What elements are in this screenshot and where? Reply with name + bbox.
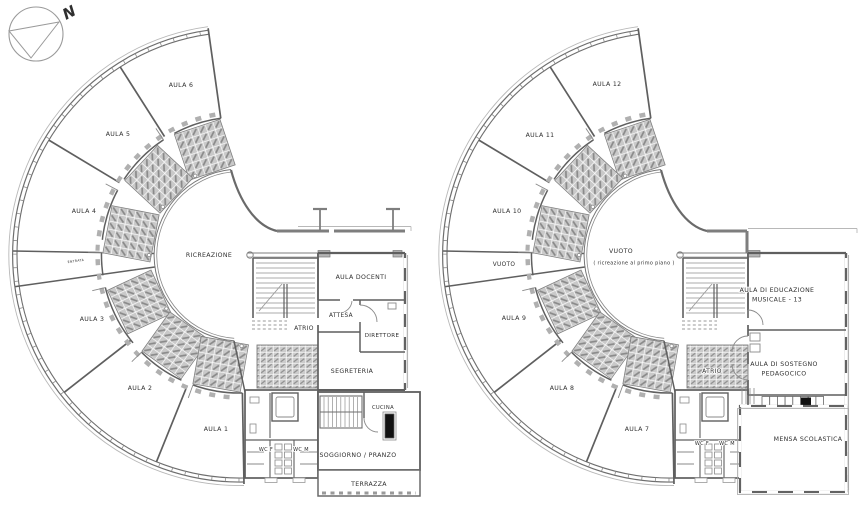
- window-mullion-tick: [148, 48, 150, 52]
- door-swing: [360, 305, 377, 322]
- window-mullion-tick: [134, 452, 136, 456]
- room-label-educazione-musicale: AULA DI EDUCAZIONE: [740, 287, 815, 294]
- room-label-mensa-scolastica: MENSA SCOLASTICA: [774, 436, 843, 443]
- main-staircase: [252, 253, 318, 329]
- window-mullion-tick: [123, 60, 125, 63]
- window-mullion-tick: [457, 333, 461, 334]
- room-label-aula-6: AULA 6: [169, 82, 194, 89]
- column-marker: [595, 307, 598, 310]
- room-label-sostegno-pedagogico: PEDAGOCICO: [762, 371, 807, 378]
- plan-rect: [533, 206, 589, 262]
- window-mullion-tick: [27, 333, 31, 334]
- window-mullion-tick: [590, 42, 591, 46]
- wc-sink: [285, 444, 292, 450]
- counter-cell: [762, 397, 770, 407]
- wc-sink: [715, 452, 722, 458]
- room-label-soggiorno-pranzo: SOGGIORNO / PRANZO: [320, 452, 397, 459]
- window-mullion-tick: [491, 392, 494, 394]
- counter-cell: [777, 397, 785, 407]
- window-mullion-tick: [616, 34, 617, 38]
- window-mullion-tick: [146, 458, 148, 462]
- curved-entry-wall: [661, 170, 707, 231]
- window-mullion-tick: [509, 412, 512, 415]
- fan-end-wall: [672, 393, 674, 484]
- window-mullion-tick: [69, 402, 72, 405]
- classroom-partition-wall: [64, 340, 131, 392]
- window-mullion-tick: [454, 187, 458, 188]
- room-label-segreteria: SEGRETERIA: [331, 368, 374, 375]
- room-label-terrazza: TERRAZZA: [350, 481, 387, 488]
- door-opening: [104, 275, 106, 287]
- floor-plan-left: AULA 6AULA 5AULA 4AULA 3AULA 2AULA 1RICR…: [9, 27, 420, 496]
- atrium-ramp-hatch: [257, 345, 318, 388]
- window-mullion-tick: [110, 438, 112, 441]
- window-mullion-tick: [172, 468, 173, 472]
- wc-fixture: [250, 424, 256, 433]
- room-label-wc-f: WC F: [259, 447, 273, 453]
- furniture: [388, 303, 396, 309]
- window-mullion-tick: [484, 125, 487, 127]
- window-mullion-tick: [603, 38, 604, 42]
- window-mullion-tick: [510, 94, 513, 97]
- window-mullion-tick: [615, 471, 616, 475]
- door-opening: [594, 134, 605, 141]
- radiator: [265, 478, 277, 483]
- window-mullion-tick: [61, 392, 64, 394]
- room-sublabel-vuoto-centro: ( ricreazione al primo piano ): [593, 261, 674, 267]
- column-marker: [240, 344, 243, 347]
- room-label-aula-3: AULA 3: [80, 316, 105, 323]
- radiator: [723, 478, 735, 483]
- classroom-partition-wall: [120, 67, 166, 139]
- window-mullion-tick: [135, 54, 137, 58]
- room-label-vuoto-centro: VUOTO: [609, 248, 633, 255]
- room-label-ricreazione: RICREAZIONE: [186, 252, 232, 259]
- kitchen-appliance: [801, 398, 811, 406]
- wc-block: [675, 390, 748, 483]
- door-opening: [534, 275, 536, 287]
- north-arrow-compass: N: [9, 2, 79, 61]
- window-mullion-tick: [39, 149, 43, 151]
- wc-sink: [275, 460, 282, 466]
- room-label-entrata: ENTRATA: [67, 258, 85, 264]
- room-label-aula-docenti: AULA DOCENTI: [336, 274, 387, 281]
- window-mullion-tick: [28, 174, 32, 175]
- room-label-aula-12: AULA 12: [593, 81, 622, 88]
- window-mullion-tick: [23, 320, 27, 321]
- column-marker: [670, 344, 673, 347]
- window-mullion-tick: [17, 294, 21, 295]
- floor-plan-right: AULA 12AULA 11AULA 10VUOTOAULA 9AULA 8AU…: [439, 27, 857, 495]
- window-mullion-tick: [453, 320, 457, 321]
- window-mullion-tick: [24, 187, 28, 188]
- window-mullion-tick: [186, 34, 187, 38]
- wc-sink: [285, 460, 292, 466]
- column-marker: [577, 253, 580, 256]
- radiator: [293, 478, 305, 483]
- door-opening: [563, 343, 571, 352]
- window-mullion-tick: [565, 54, 567, 58]
- radiator: [695, 478, 707, 483]
- floor-plan-drawing: N AULA 6AULA 5AULA 4AULA 3AULA 2AULA 1RI…: [0, 0, 860, 510]
- door-opening: [164, 134, 175, 141]
- window-mullion-tick: [501, 104, 504, 107]
- window-mullion-tick: [19, 308, 23, 309]
- wc-sink: [715, 468, 722, 474]
- lift-car: [706, 397, 724, 417]
- main-staircase: [682, 253, 748, 329]
- hatched-ramp-patch: [533, 206, 589, 262]
- kitchen-appliance: [385, 414, 394, 438]
- door-swing: [339, 300, 352, 313]
- window-mullion-tick: [90, 85, 93, 88]
- window-mullion-tick: [71, 104, 74, 107]
- north-label: N: [59, 2, 79, 24]
- window-mullion-tick: [492, 114, 495, 116]
- classroom-partition-wall: [156, 383, 188, 462]
- counter-cell: [793, 397, 801, 407]
- wc-fixture: [250, 397, 259, 403]
- wc-sink: [275, 444, 282, 450]
- wc-fixture: [680, 424, 686, 433]
- window-mullion-tick: [483, 381, 486, 383]
- window-mullion-tick: [198, 474, 199, 478]
- window-mullion-tick: [450, 200, 454, 201]
- column-marker: [591, 205, 594, 208]
- window-mullion-tick: [447, 213, 451, 214]
- window-mullion-tick: [469, 358, 473, 360]
- window-mullion-tick: [99, 430, 101, 433]
- classroom-partition-wall: [550, 67, 596, 139]
- window-mullion-tick: [447, 294, 451, 295]
- room-label-wc-m: WC M: [293, 447, 309, 453]
- window-mullion-tick: [160, 42, 161, 46]
- room-label-aula-10: AULA 10: [493, 208, 522, 215]
- window-mullion-tick: [79, 412, 82, 415]
- window-mullion-tick: [475, 370, 478, 372]
- window-mullion-tick: [17, 213, 21, 214]
- window-mullion-tick: [499, 402, 502, 405]
- fan-end-wall: [638, 28, 651, 118]
- window-mullion-tick: [531, 76, 533, 79]
- classroom-partition-wall: [49, 140, 122, 184]
- room-label-aula-5: AULA 5: [106, 131, 131, 138]
- window-mullion-tick: [552, 445, 554, 448]
- room-label-attesa: ATTESA: [329, 313, 353, 319]
- window-mullion-tick: [33, 161, 37, 163]
- curved-entry-wall: [231, 170, 277, 231]
- window-mullion-tick: [628, 474, 629, 478]
- door-opening: [532, 240, 533, 253]
- door-leaf: [188, 385, 193, 398]
- window-mullion-tick: [529, 430, 531, 433]
- hatched-ramp-patch: [103, 206, 159, 262]
- window-mullion-tick: [602, 468, 603, 472]
- wc-sink: [705, 468, 712, 474]
- window-mullion-tick: [101, 76, 103, 79]
- wc-sink: [275, 452, 282, 458]
- wc-sink: [275, 468, 282, 474]
- window-mullion-tick: [469, 149, 473, 151]
- window-mullion-tick: [80, 94, 83, 97]
- room-label-atrio: ATRIO: [294, 325, 314, 332]
- fan-end-wall: [208, 28, 221, 118]
- furniture: [750, 333, 760, 341]
- door-opening: [102, 240, 103, 253]
- counter-cell: [816, 397, 824, 407]
- compass-circle: [9, 7, 63, 61]
- window-mullion-tick: [578, 48, 580, 52]
- room-label-atrio: ATRIO: [702, 368, 722, 375]
- room-label-aula-2: AULA 2: [128, 385, 153, 392]
- room-label-aula-8: AULA 8: [550, 385, 575, 392]
- window-mullion-tick: [200, 32, 201, 36]
- room-label-wc-f: WC F: [695, 441, 709, 447]
- window-mullion-tick: [553, 60, 555, 63]
- door-swing: [748, 310, 763, 325]
- window-mullion-tick: [159, 463, 160, 467]
- window-mullion-tick: [185, 471, 186, 475]
- window-mullion-tick: [45, 370, 48, 372]
- window-mullion-tick: [576, 458, 578, 462]
- atrium-ramp-hatch: [687, 345, 748, 388]
- window-mullion-tick: [89, 421, 92, 424]
- window-mullion-tick: [476, 137, 479, 139]
- room-label-aula-7: AULA 7: [625, 426, 650, 433]
- window-mullion-tick: [589, 463, 590, 467]
- room-label-aula-1: AULA 1: [204, 426, 229, 433]
- window-mullion-tick: [33, 346, 37, 348]
- wc-sink: [715, 460, 722, 466]
- counter-cell: [770, 397, 778, 407]
- window-mullion-tick: [20, 200, 24, 201]
- plan-rect: [103, 206, 159, 262]
- window-mullion-tick: [463, 161, 467, 163]
- window-mullion-tick: [458, 174, 462, 175]
- window-mullion-tick: [540, 438, 542, 441]
- classroom-partition-wall: [586, 383, 618, 462]
- classroom-partition-wall: [479, 140, 552, 184]
- window-mullion-tick: [122, 445, 124, 448]
- room-label-educazione-musicale: MUSICALE - 13: [752, 297, 802, 304]
- furniture: [750, 344, 760, 352]
- window-mullion-tick: [519, 421, 522, 424]
- window-mullion-tick: [46, 137, 49, 139]
- room-label-wc-m: WC M: [719, 441, 735, 447]
- door-opening: [133, 343, 141, 352]
- column-marker: [193, 174, 196, 177]
- window-mullion-tick: [39, 358, 43, 360]
- column-marker: [623, 174, 626, 177]
- door-leaf: [618, 385, 623, 398]
- wc-sink: [285, 468, 292, 474]
- wc-block: [245, 390, 318, 483]
- column-marker: [161, 205, 164, 208]
- window-mullion-tick: [54, 125, 57, 127]
- lift-car: [276, 397, 294, 417]
- room-label-sostegno-pedagogico: AULA DI SOSTEGNO: [750, 361, 817, 368]
- fan-end-wall: [242, 393, 244, 484]
- window-mullion-tick: [520, 85, 523, 88]
- room-label-direttore: DIRETTORE: [365, 333, 400, 339]
- window-mullion-tick: [449, 308, 453, 309]
- room-label-cucina: CUCINA: [372, 405, 394, 411]
- wc-fixture: [680, 397, 689, 403]
- column-marker: [165, 307, 168, 310]
- window-mullion-tick: [62, 114, 65, 116]
- window-mullion-tick: [564, 452, 566, 456]
- counter-cell: [785, 397, 793, 407]
- wc-sink: [705, 460, 712, 466]
- room-label-aula-11: AULA 11: [526, 132, 555, 139]
- window-mullion-tick: [53, 381, 56, 383]
- column-marker: [147, 253, 150, 256]
- wc-sink: [285, 452, 292, 458]
- drawing-sheet: N AULA 6AULA 5AULA 4AULA 3AULA 2AULA 1RI…: [0, 0, 860, 510]
- plan-rect: [740, 406, 846, 492]
- window-mullion-tick: [542, 68, 544, 71]
- wc-sink: [705, 452, 712, 458]
- window-mullion-tick: [173, 38, 174, 42]
- room-label-vuoto: VUOTO: [493, 262, 516, 268]
- room-label-aula-9: AULA 9: [502, 315, 527, 322]
- room-label-aula-4: AULA 4: [72, 208, 97, 215]
- window-mullion-tick: [112, 68, 114, 71]
- window-mullion-tick: [463, 346, 467, 348]
- window-mullion-tick: [630, 32, 631, 36]
